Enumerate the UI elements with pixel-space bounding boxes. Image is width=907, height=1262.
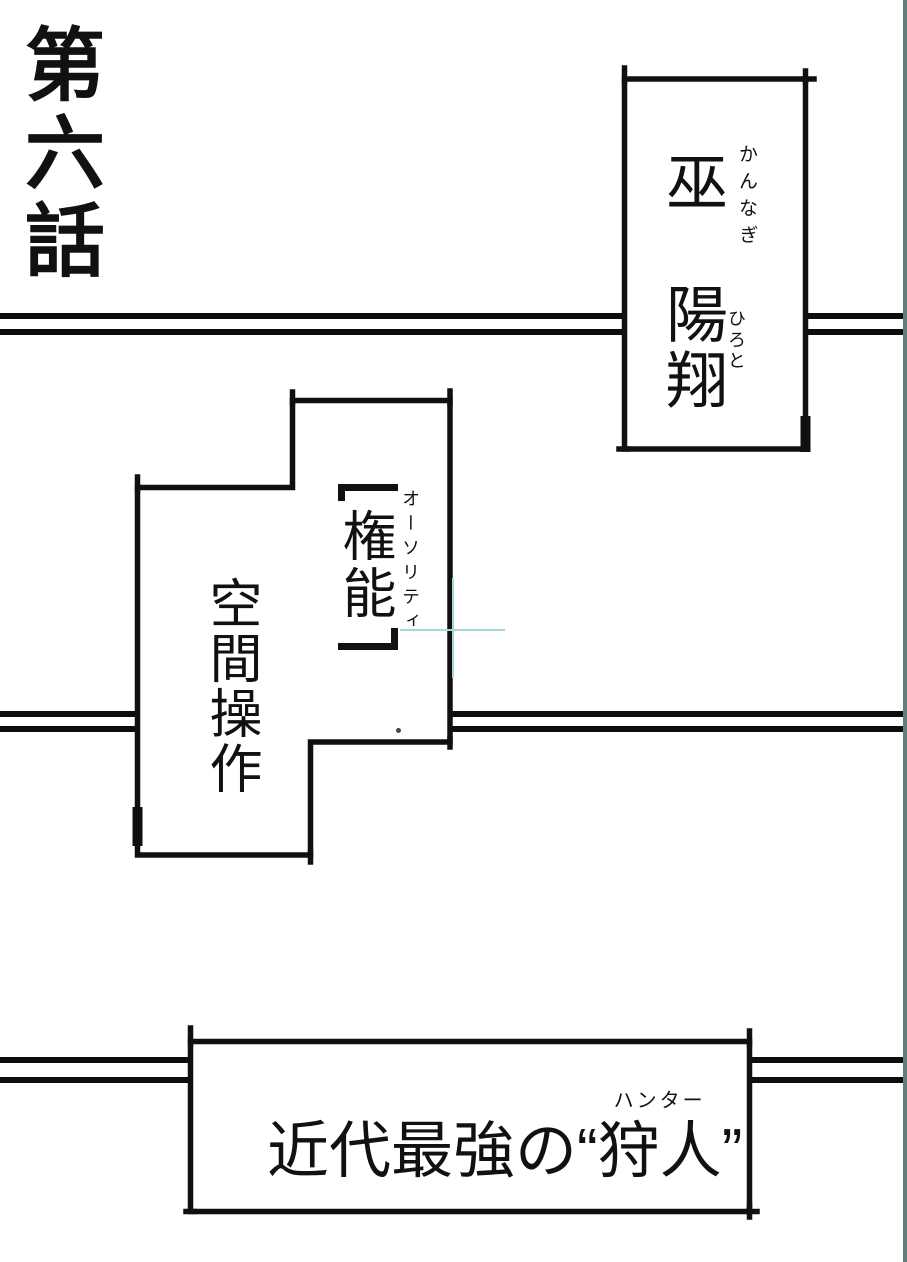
hunter-word: 狩人ハンター (598, 1100, 722, 1190)
page-edge-strip (903, 0, 907, 1262)
authority-title: 権能 (337, 508, 391, 622)
character-name: 巫 陽翔 (659, 150, 721, 414)
crosshair-vertical (452, 578, 454, 678)
ink-speck (396, 728, 401, 733)
given-name-furigana: ひろと (727, 309, 745, 372)
hunter-furigana: ハンター (614, 1084, 706, 1113)
hunter-word-text: 狩人 (598, 1117, 722, 1186)
surname-furigana: かんなぎ (737, 144, 756, 252)
authority-subtitle: 空間操作 (204, 576, 257, 796)
hunter-tagline-prefix: 近代最強の (267, 1100, 577, 1190)
authority-furigana: オーソリティ (401, 489, 419, 636)
manga-title-page: 第六話 巫 陽翔 かんなぎ ひろと 権能 オーソリティ 空間操作 近代最強の“狩… (0, 0, 907, 1262)
close-quote: ” (722, 1116, 743, 1187)
episode-title: 第六話 (17, 23, 97, 287)
open-quote: “ (577, 1116, 598, 1187)
open-bracket-glyph (338, 484, 398, 501)
close-bracket-glyph (338, 628, 398, 650)
hunter-tagline: 近代最強の“狩人ハンター” (267, 1100, 742, 1190)
